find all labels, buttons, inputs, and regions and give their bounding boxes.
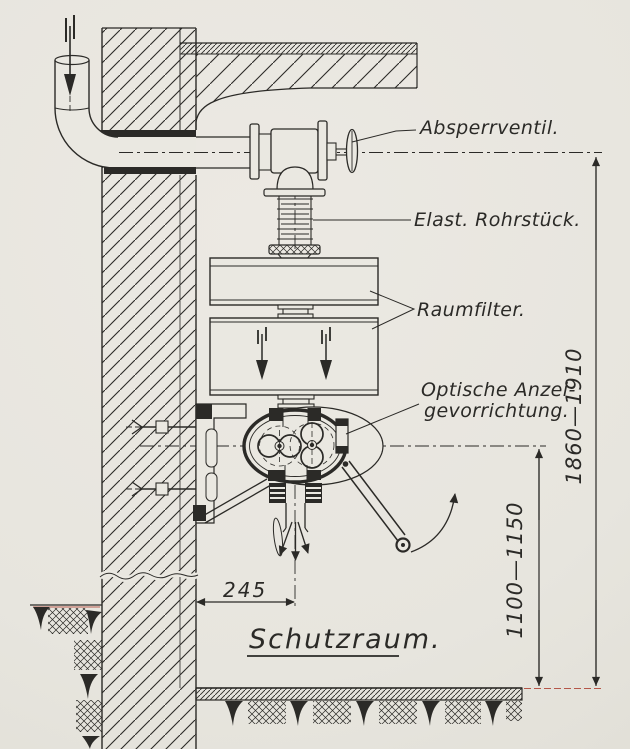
outlet-assembly bbox=[269, 483, 322, 560]
ceiling-screed-band bbox=[180, 43, 417, 54]
pipe-seal-bottom bbox=[104, 167, 196, 174]
room-label-text: Schutzraum. bbox=[249, 624, 442, 655]
valve-flange-right bbox=[318, 121, 327, 180]
valve-stem bbox=[327, 143, 336, 160]
elastic-pipe-section bbox=[269, 196, 320, 260]
earth-symbols bbox=[225, 701, 522, 726]
ground-left-of-wall bbox=[30, 605, 102, 749]
shutoff-valve bbox=[250, 121, 358, 196]
valve-body bbox=[271, 129, 318, 173]
bracket-slot bbox=[206, 473, 217, 501]
dimension-value: 245 bbox=[223, 578, 267, 602]
bellows-bottom-flange bbox=[269, 245, 320, 254]
outlet-flange-stack bbox=[269, 483, 322, 503]
rotation-arc-arrow bbox=[411, 494, 455, 552]
optical-indicator bbox=[336, 419, 348, 453]
filter-connector-spool bbox=[278, 305, 313, 318]
dimension-floor-to-blower-axis: 1100—1150 bbox=[503, 449, 539, 686]
shelter-ventilation-section-drawing: 1860—1910 1100—1150 245 Absperrventil. E… bbox=[0, 0, 630, 749]
pipe-seal-top bbox=[100, 130, 196, 137]
filter-box-lower bbox=[210, 318, 378, 395]
bracket-anchor bbox=[193, 505, 206, 521]
valve-flange-left bbox=[250, 124, 259, 179]
outlet-clip bbox=[272, 518, 285, 557]
label-absperrventil: Absperrventil. bbox=[418, 117, 559, 139]
filter-box-upper bbox=[210, 258, 378, 305]
label-optische-anzeige-line2: gevorrichtung. bbox=[424, 400, 569, 422]
dimension-floor-to-pipe-axis: 1860—1910 bbox=[524, 157, 604, 689]
room-filter-assembly bbox=[210, 258, 378, 408]
bracket-slot bbox=[206, 429, 217, 467]
blower-unit bbox=[243, 407, 383, 485]
crank-handle bbox=[342, 461, 455, 552]
blower-inlet-spool bbox=[278, 395, 314, 408]
dimension-value: 1100—1150 bbox=[503, 502, 527, 639]
room-label: Schutzraum. bbox=[247, 624, 442, 656]
earth-symbols bbox=[33, 607, 102, 749]
ceiling-section bbox=[180, 43, 417, 130]
pipe-open-top bbox=[55, 56, 89, 65]
scanned-technical-drawing: 1860—1910 1100—1150 245 Absperrventil. E… bbox=[0, 0, 630, 749]
label-raumfilter: Raumfilter. bbox=[417, 299, 525, 321]
valve-outlet-flange bbox=[264, 189, 325, 196]
label-optische-anzeige-line1: Optische Anzei- bbox=[421, 379, 576, 401]
floor-section bbox=[196, 688, 522, 726]
leader-absperrventil bbox=[352, 130, 416, 142]
outlet-spray-arrows bbox=[280, 522, 308, 560]
label-elast-rohrstueck: Elast. Rohrstück. bbox=[414, 209, 581, 231]
dimension-wall-to-axis: 245 bbox=[197, 578, 294, 602]
